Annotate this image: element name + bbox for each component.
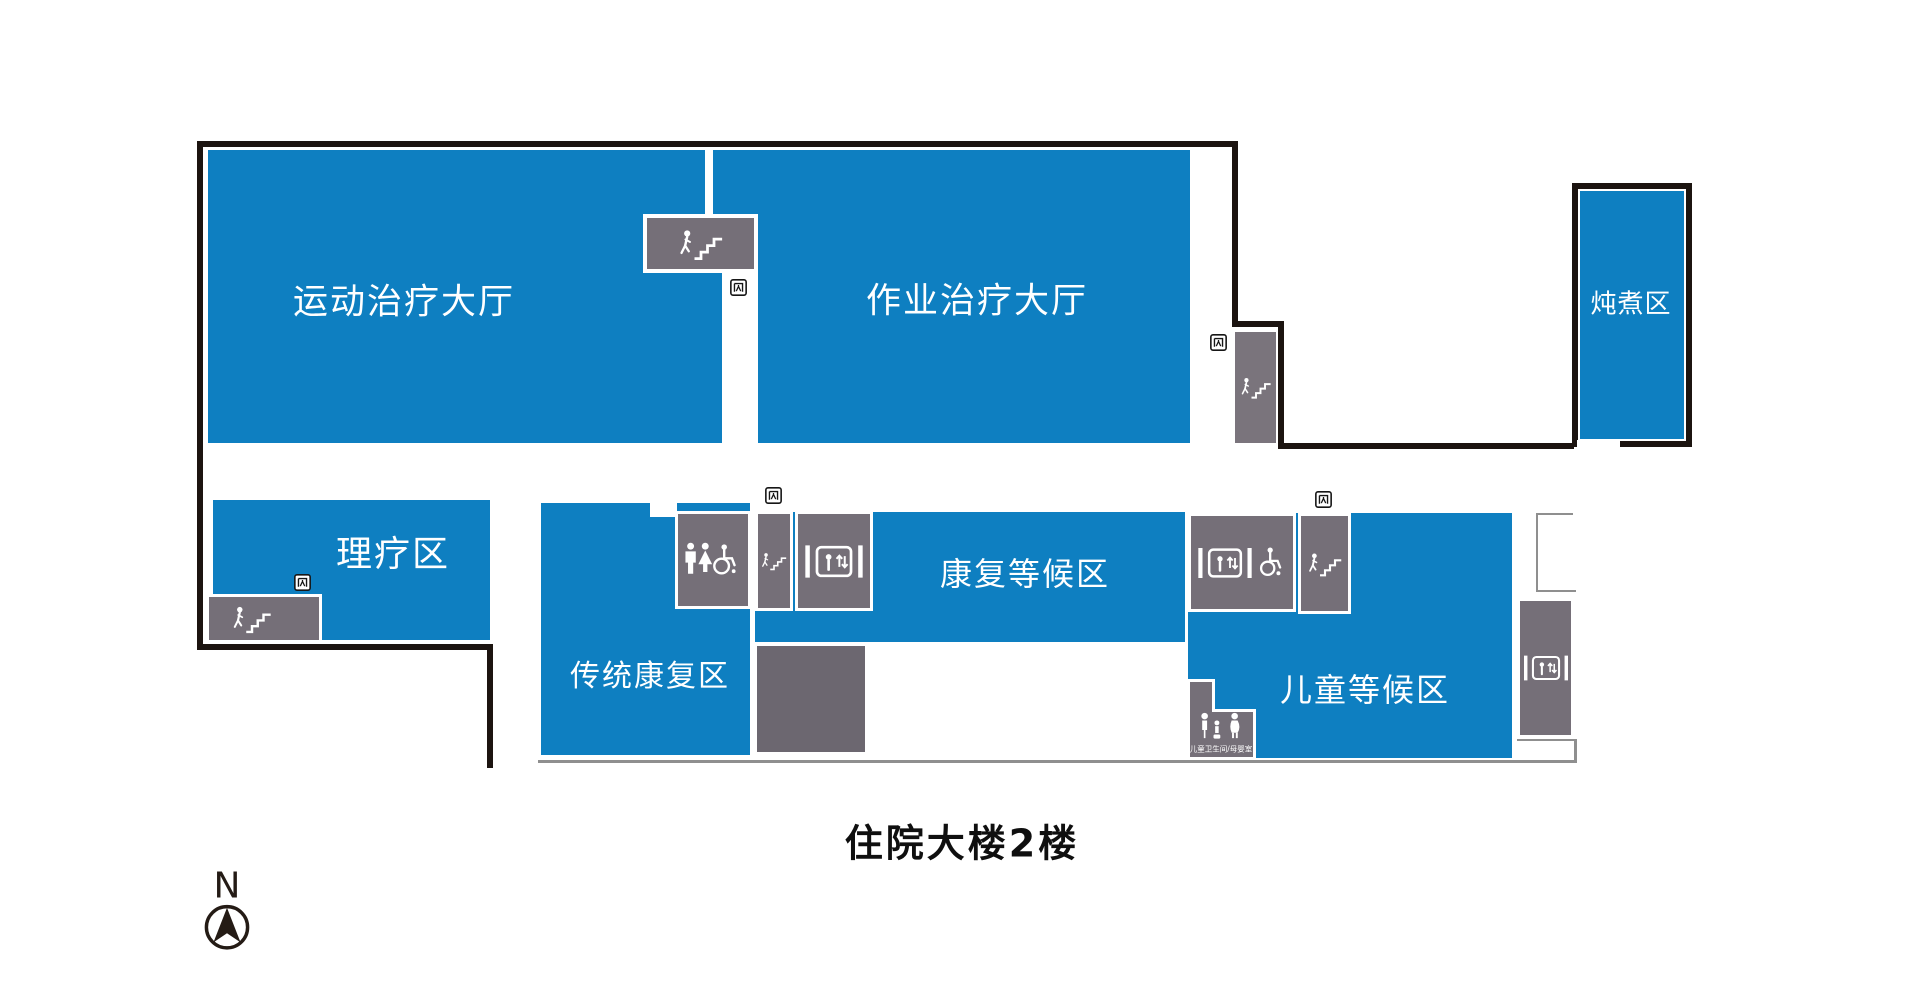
elevator-accessible-children <box>1188 513 1296 612</box>
restroom-accessible <box>675 511 751 609</box>
wall-bottom-left-h <box>197 644 493 650</box>
room-label-children-waiting: 儿童等候区 <box>1280 665 1450 711</box>
hall-divider-wall <box>705 150 713 216</box>
wall-right-jog-h <box>1232 321 1284 327</box>
outline-elevator-right <box>1574 739 1577 763</box>
stairs-icon <box>1238 375 1274 400</box>
outline-notch-bottom <box>1536 590 1576 592</box>
restroom-accessible-icon <box>682 541 744 579</box>
wall-top <box>197 141 1238 147</box>
wall-corridor-h <box>1278 443 1574 449</box>
stairs-icon <box>675 226 727 262</box>
stairwell-top-center <box>643 214 758 273</box>
wall-left <box>197 141 203 650</box>
exit-sign-icon <box>294 574 311 591</box>
wall-right-lower <box>1278 321 1284 449</box>
stairwell-children <box>1298 513 1351 614</box>
stairs-icon <box>759 550 789 572</box>
wheelchair-icon <box>1256 546 1286 579</box>
room-label-stewing: 炖煮区 <box>1590 284 1671 321</box>
room-label-sports-therapy: 运动治疗大厅 <box>293 274 515 325</box>
stairwell-center <box>755 511 793 611</box>
stairwell-right-corridor <box>1235 332 1276 443</box>
floor-title: 住院大楼2楼 <box>845 813 1079 868</box>
unlabeled-gray-room <box>757 646 865 752</box>
room-label-occupational-therapy: 作业治疗大厅 <box>866 273 1088 324</box>
room-label-rehab-waiting: 康复等候区 <box>940 549 1110 595</box>
exit-sign-icon <box>730 279 747 296</box>
stewing-door-gap <box>1577 440 1620 448</box>
elevator-far-right <box>1517 598 1574 738</box>
outline-elevator-top <box>1517 739 1574 741</box>
hall-corridor-gap <box>722 272 758 443</box>
outline-notch-top <box>1536 513 1573 515</box>
stairwell-physiotherapy <box>206 594 322 643</box>
elevator-icon <box>1524 651 1568 685</box>
child-restroom-icon <box>1197 712 1245 742</box>
elevator-icon <box>1198 543 1252 583</box>
wall-bottom-left-v <box>487 644 493 768</box>
compass-icon <box>201 898 253 950</box>
floor-plan-canvas: 运动治疗大厅 作业治疗大厅 理疗区 传统康复区 康复等候区 儿童等候区 炖煮区 <box>0 0 1920 1001</box>
outline-bottom-corridor <box>538 760 1577 763</box>
children-restroom-label: 儿童卫生间/母婴室 <box>1190 744 1253 755</box>
room-label-physiotherapy: 理疗区 <box>336 525 450 577</box>
exit-sign-icon <box>1315 491 1332 508</box>
outline-notch-left <box>1536 513 1538 592</box>
elevator-center <box>795 511 873 611</box>
exit-sign-icon <box>765 487 782 504</box>
traditional-rehab-notch <box>650 503 677 517</box>
wall-right-upper <box>1232 141 1238 327</box>
room-label-traditional-rehab: 传统康复区 <box>570 651 730 695</box>
exit-sign-icon <box>1210 334 1227 351</box>
stairs-icon <box>1305 550 1345 578</box>
stairs-icon <box>229 603 275 635</box>
elevator-icon <box>805 540 863 583</box>
